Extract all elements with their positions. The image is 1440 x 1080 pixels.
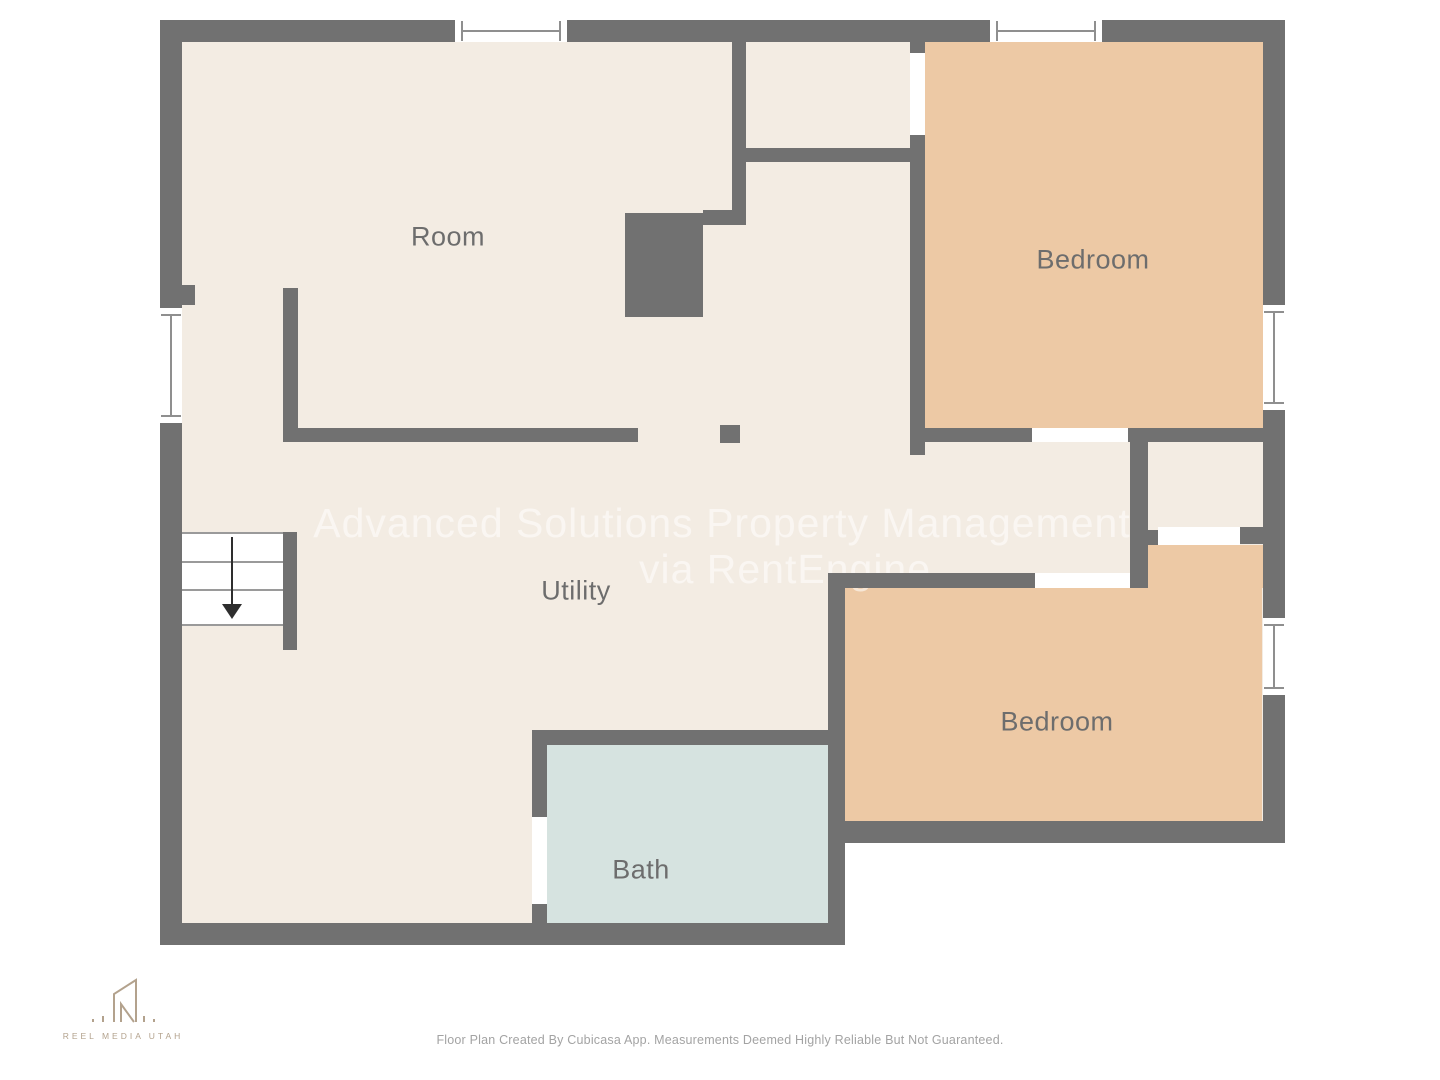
wall-segment <box>283 428 638 442</box>
wall-segment <box>720 425 740 443</box>
wall-segment <box>1128 428 1263 442</box>
staircase <box>182 532 283 626</box>
bedroom-bottom-floor-upper <box>1148 545 1263 588</box>
door-opening <box>1032 428 1128 442</box>
wall-segment <box>625 213 703 317</box>
disclaimer-text: Floor Plan Created By Cubicasa App. Meas… <box>0 1033 1440 1047</box>
door-opening <box>1035 573 1130 588</box>
wall-segment <box>532 904 547 923</box>
stairs-down-arrow-icon <box>231 537 233 609</box>
bath-floor <box>547 745 828 923</box>
wall-segment <box>160 923 845 945</box>
door-opening <box>910 53 925 135</box>
wall-segment <box>742 148 925 162</box>
bedroom-top-floor <box>925 42 1263 428</box>
window-frame-line <box>1094 21 1096 41</box>
wall-segment <box>283 288 298 442</box>
photographer-brand: REEL MEDIA UTAH <box>48 972 198 1041</box>
room-label-bedroom-bottom: Bedroom <box>1000 707 1113 738</box>
wall-segment <box>1148 530 1158 545</box>
bedroom-bottom-floor <box>845 588 1262 821</box>
window-frame-line <box>1264 402 1284 404</box>
window-frame-line <box>463 30 559 32</box>
wall-segment <box>925 428 1032 442</box>
wall-segment <box>828 573 845 923</box>
wall-segment <box>532 730 843 745</box>
window <box>990 20 1102 42</box>
floor-plan: Room Bedroom Utility Bedroom Bath Advanc… <box>0 0 1440 1080</box>
wall-segment <box>532 730 547 817</box>
wall-segment <box>828 573 1035 588</box>
window-frame-line <box>998 30 1094 32</box>
window-frame-line <box>1273 626 1275 687</box>
watermark-line-1: Advanced Solutions Property Management <box>313 500 1130 547</box>
window-frame-line <box>170 316 172 415</box>
window <box>1263 305 1285 410</box>
wall-segment <box>1130 442 1148 588</box>
wall-segment <box>732 42 746 212</box>
door-opening <box>1158 527 1240 545</box>
door-opening <box>532 817 547 904</box>
floor-plan-page: Room Bedroom Utility Bedroom Bath Advanc… <box>0 0 1440 1080</box>
wall-segment <box>283 532 297 650</box>
window-frame-line <box>161 415 181 417</box>
wall-segment <box>1263 20 1285 843</box>
window-frame-line <box>1273 313 1275 402</box>
wall-segment <box>160 20 1285 42</box>
house-logo-icon <box>78 972 168 1024</box>
window-frame-line <box>559 21 561 41</box>
wall-segment <box>160 20 182 945</box>
wall-segment <box>910 135 925 455</box>
wall-segment <box>1240 527 1263 544</box>
outside-notch <box>843 843 1263 923</box>
window <box>160 308 182 423</box>
room-label-bedroom-top: Bedroom <box>1036 245 1149 276</box>
window <box>1263 618 1285 695</box>
window <box>455 20 567 42</box>
window-frame-line <box>1264 687 1284 689</box>
wall-segment <box>182 285 195 305</box>
room-label-utility: Utility <box>541 576 611 607</box>
stairs-down-arrowhead-icon <box>222 604 242 619</box>
room-label-room: Room <box>411 222 485 253</box>
wall-segment <box>828 821 1285 843</box>
wall-segment <box>703 210 746 225</box>
wall-segment <box>910 42 925 53</box>
room-label-bath: Bath <box>612 855 670 886</box>
